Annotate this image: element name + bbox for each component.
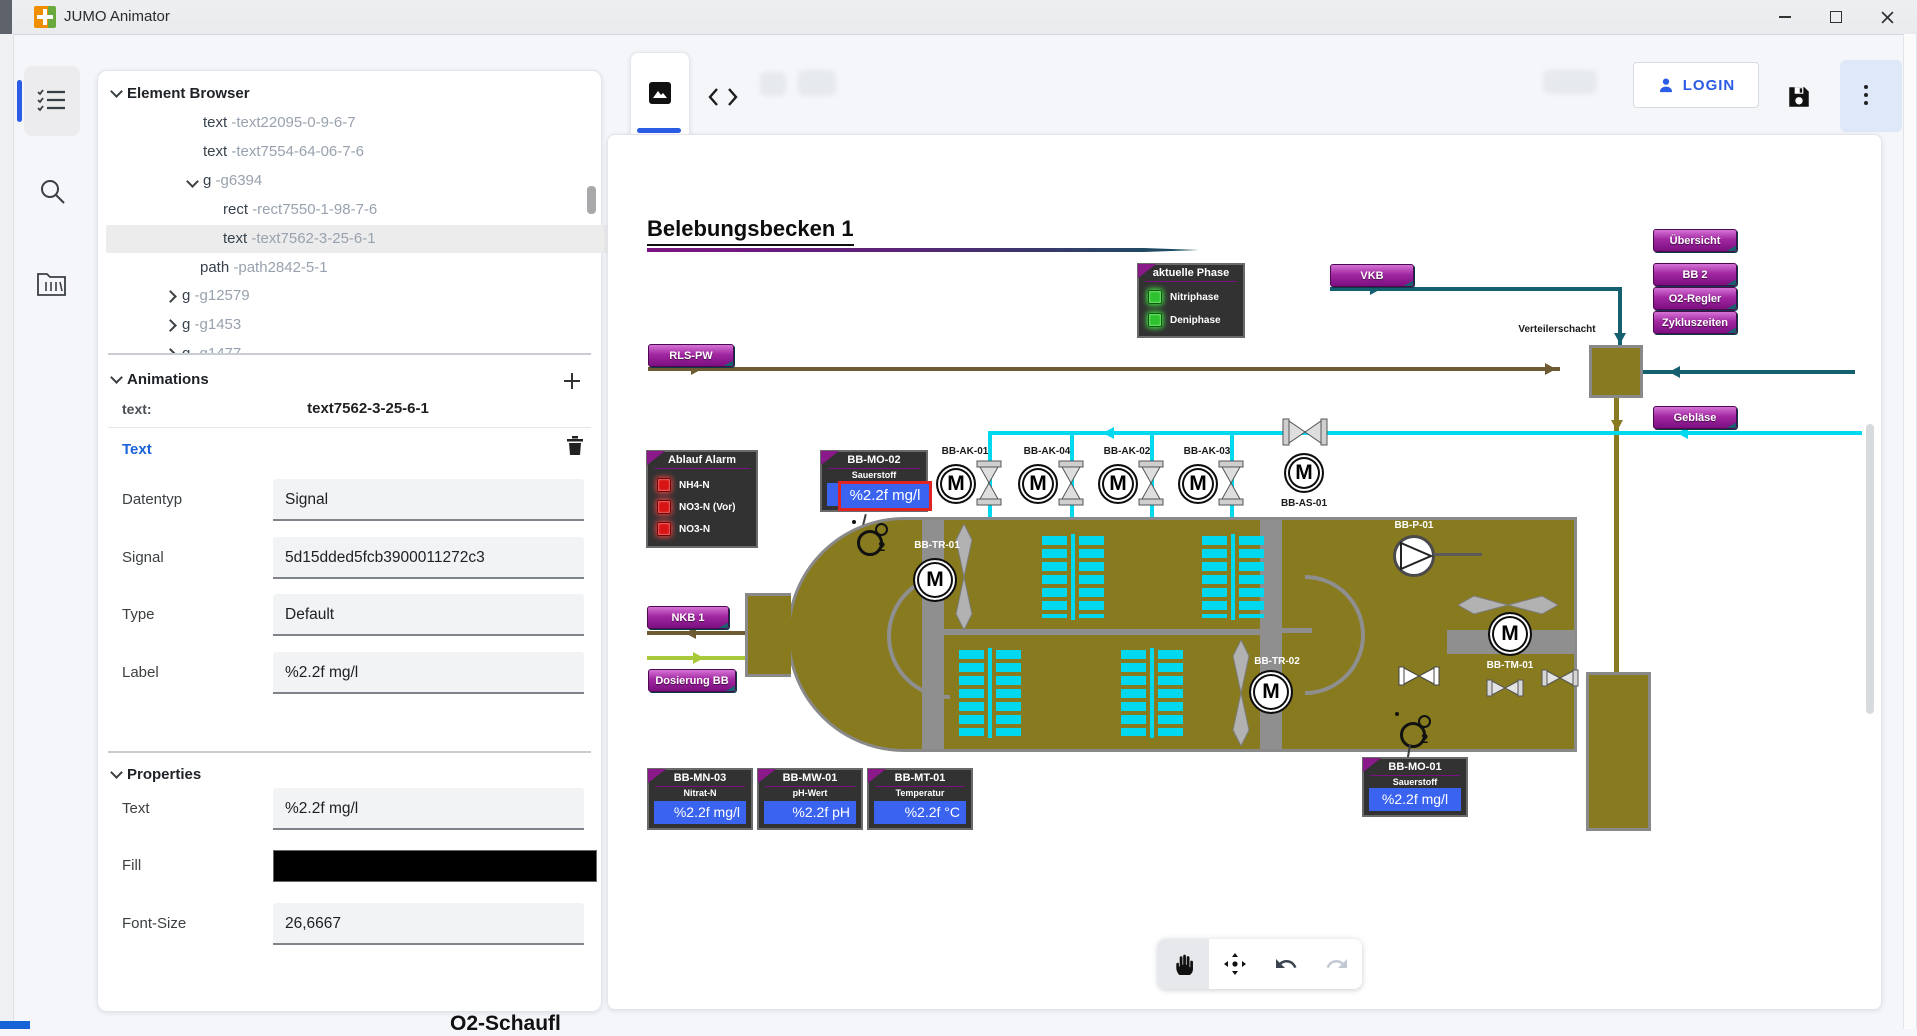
corner-accent <box>1138 264 1156 278</box>
undo-button[interactable] <box>1260 939 1311 989</box>
corner-accent <box>648 769 666 783</box>
image-icon <box>648 81 672 105</box>
taskbar-corner <box>0 1021 30 1029</box>
corner-accent <box>1721 301 1737 310</box>
canvas-tool-bar <box>1158 939 1362 989</box>
sensor-bb-mn-03[interactable]: BB-MN-03 Nitrat-N %2.2f mg/l <box>647 768 753 830</box>
motor-bb-ak-04[interactable]: M <box>1018 464 1058 504</box>
nav-button-nkb1[interactable]: NKB 1 <box>647 606 729 629</box>
nav-button-vkb[interactable]: VKB <box>1330 264 1414 287</box>
flow-arrow <box>1611 420 1623 431</box>
row-divider <box>108 427 591 428</box>
corner-accent <box>821 451 839 465</box>
heading-accent-line <box>647 248 1199 252</box>
diagram-title[interactable]: Belebungsbecken 1 <box>647 216 854 246</box>
animation-group-link[interactable]: Text <box>122 441 152 458</box>
pump-discharge-line <box>1434 553 1482 556</box>
nav-button-uebersicht[interactable]: Übersicht <box>1653 229 1737 252</box>
active-tab-indicator <box>637 128 681 133</box>
green-led <box>1148 313 1162 327</box>
field-label: Datentyp <box>122 491 182 508</box>
chevron-down-icon[interactable] <box>186 175 199 188</box>
nav-button-geblaese[interactable]: Gebläse <box>1653 406 1737 429</box>
add-animation-button[interactable] <box>562 371 582 396</box>
close-button[interactable] <box>1867 0 1907 34</box>
redacted-toolbar-item <box>760 72 786 96</box>
redo-button[interactable] <box>1311 939 1362 989</box>
element-list-icon <box>37 88 67 114</box>
motor-bb-as-01[interactable]: M <box>1284 453 1324 493</box>
flow-arrow <box>1545 363 1556 375</box>
diffuser-grid[interactable] <box>959 648 1021 738</box>
diffuser-grid[interactable] <box>1121 648 1183 738</box>
tab-visual-editor[interactable] <box>630 52 690 136</box>
login-label: LOGIN <box>1683 77 1736 94</box>
tr2-label: BB-TR-02 <box>1237 656 1317 667</box>
nav-button-zykluszeiten[interactable]: Zykluszeiten <box>1653 311 1737 334</box>
tm-label: BB-TM-01 <box>1472 660 1548 671</box>
pipe-olive-drop <box>1614 398 1619 674</box>
o2-dot <box>1395 712 1399 716</box>
phase-status-box[interactable]: aktuelle Phase Nitriphase Deniphase <box>1137 263 1245 338</box>
red-led <box>657 522 671 536</box>
aerator-label: BB-AK-03 <box>1167 446 1247 457</box>
maximize-icon <box>1830 11 1842 23</box>
pan-tool-button[interactable] <box>1158 939 1209 989</box>
save-button[interactable] <box>1786 84 1812 115</box>
corner-accent <box>868 769 886 783</box>
fill-color-swatch[interactable] <box>273 850 597 882</box>
motor-bb-tr-01[interactable]: M <box>913 558 957 602</box>
code-icon <box>708 86 738 108</box>
tab-code-editor[interactable] <box>708 86 738 113</box>
field-label: Text <box>122 800 150 817</box>
canvas-scrollbar-thumb[interactable] <box>1866 424 1874 714</box>
green-led <box>1148 290 1162 304</box>
sensor-bb-mw-01[interactable]: BB-MW-01 pH-Wert %2.2f pH <box>757 768 863 830</box>
save-icon <box>1786 84 1812 110</box>
window-edge-dark <box>0 0 12 34</box>
chevron-right-icon[interactable] <box>164 319 177 332</box>
motor-bb-tm-01[interactable]: M <box>1488 612 1532 656</box>
corner-accent <box>1363 758 1381 772</box>
corner-accent <box>758 769 776 783</box>
tree-row[interactable]: g -g14772 <box>106 340 682 353</box>
window-titlebar[interactable]: JUMO Animator <box>0 0 1917 35</box>
nav-button-bb2[interactable]: BB 2 <box>1653 263 1737 286</box>
aerator-label: BB-AK-01 <box>925 446 1005 457</box>
rail-active-indicator <box>17 80 22 122</box>
redacted-toolbar-item <box>798 70 836 96</box>
flow-arrow <box>1669 366 1680 378</box>
pipe-air-header-cyan <box>990 431 1862 435</box>
sidebar-item-elements[interactable] <box>37 88 67 119</box>
user-icon <box>1657 76 1675 94</box>
jumo-logo-icon <box>34 6 56 28</box>
valve-icon[interactable] <box>1058 460 1084 506</box>
window-scrollbar[interactable] <box>1903 34 1917 1029</box>
animations-header[interactable]: Animations <box>112 371 209 389</box>
sensor-bb-mo-01[interactable]: BB-MO-01 Sauerstoff %2.2f mg/l <box>1362 757 1468 817</box>
pump-icon[interactable] <box>1392 534 1436 578</box>
clipped-heading-fragment: O2-Schaufl <box>450 1012 561 1036</box>
valve-icon[interactable] <box>1486 678 1524 698</box>
side-tank[interactable] <box>1586 672 1651 831</box>
undo-icon <box>1274 952 1298 976</box>
window-edge-strip <box>0 34 14 1029</box>
valve-icon-white[interactable] <box>1398 665 1440 687</box>
verteilerschacht-label: Verteilerschacht <box>1497 324 1617 335</box>
motor-bb-ak-03[interactable]: M <box>1178 464 1218 504</box>
properties-header[interactable]: Properties <box>112 766 201 784</box>
sensor-value[interactable]: %2.2f mg/l <box>654 801 746 824</box>
tr1-label: BB-TR-01 <box>897 540 977 551</box>
corner-accent <box>713 620 729 629</box>
delete-animation-button[interactable] <box>566 435 584 461</box>
aerator-label: BB-AK-02 <box>1087 446 1167 457</box>
move-icon <box>1223 952 1247 976</box>
motor-bb-tr-02[interactable]: M <box>1249 670 1293 714</box>
section-divider <box>108 751 591 753</box>
selected-text-element[interactable]: %2.2f mg/l <box>838 481 932 511</box>
sidebar-item-library[interactable] <box>37 270 66 301</box>
basin-mid-divider <box>940 629 1262 635</box>
flow-arrow <box>1103 427 1114 439</box>
tree-row[interactable]: g -g14531 <box>106 311 682 339</box>
nav-button-dosierung-bb[interactable]: Dosierung BB <box>648 669 736 692</box>
chevron-down-icon <box>110 85 123 98</box>
tree-scrollbar-thumb[interactable] <box>587 186 596 214</box>
red-led <box>657 500 671 514</box>
window-title: JUMO Animator <box>64 8 170 25</box>
corner-accent <box>647 451 665 465</box>
o2-dot <box>852 520 856 524</box>
search-icon <box>38 177 66 205</box>
field-label: Label <box>122 664 159 681</box>
nav-button-rls-pw[interactable]: RLS-PW <box>648 344 734 367</box>
redacted-toolbar-item <box>1543 70 1597 94</box>
red-led <box>657 478 671 492</box>
as-label: BB-AS-01 <box>1264 498 1344 509</box>
redo-icon <box>1325 952 1349 976</box>
sensor-value[interactable]: %2.2f mg/l <box>1369 788 1461 811</box>
sidebar-item-search[interactable] <box>38 177 66 210</box>
signal-input[interactable]: 5d15dded5fcb3900011272c3 <box>273 537 584 579</box>
library-folder-icon <box>37 270 66 296</box>
menu-hover-bg <box>1840 60 1902 132</box>
datentyp-input[interactable]: Signal <box>273 479 584 521</box>
scada-canvas[interactable]: Belebungsbecken 1 Verteilerschacht RLS-P… <box>607 134 1880 1008</box>
inspector-panel: Element Browser text -text22095-0-9-6-7 … <box>97 70 602 1012</box>
trash-icon <box>566 435 584 456</box>
field-label: Font-Size <box>122 915 186 932</box>
pipe-inlet-brown <box>648 367 1560 371</box>
corner-accent <box>718 358 734 367</box>
valve-icon[interactable] <box>1282 418 1328 446</box>
o2-bubble <box>1418 715 1431 728</box>
corner-accent <box>1721 420 1737 429</box>
flow-arrow <box>693 652 704 664</box>
corner-accent <box>1398 278 1414 287</box>
minimize-icon <box>1779 16 1791 18</box>
animation-target-label: text: <box>122 401 152 417</box>
chevron-down-icon <box>110 766 123 779</box>
valve-icon[interactable] <box>1138 460 1164 506</box>
animation-target-value: text7562-3-25-6-1 <box>248 400 488 417</box>
p1-label: BB-P-01 <box>1382 520 1446 531</box>
kebab-icon <box>1864 85 1868 89</box>
chevron-down-icon <box>110 371 123 384</box>
login-button[interactable]: LOGIN <box>1633 62 1759 108</box>
field-label: Type <box>122 606 155 623</box>
nav-button-o2-regler[interactable]: O2-Regler <box>1653 287 1737 310</box>
move-tool-button[interactable] <box>1209 939 1260 989</box>
plus-icon <box>562 371 582 391</box>
sensor-value[interactable]: %2.2f °C <box>874 801 966 824</box>
chevron-right-icon[interactable] <box>164 290 177 303</box>
section-divider <box>108 353 591 355</box>
sensor-bb-mt-01[interactable]: BB-MT-01 Temperatur %2.2f °C <box>867 768 973 830</box>
diffuser-grid[interactable] <box>1202 534 1264 620</box>
o2-bubble <box>875 523 888 536</box>
hand-icon <box>1173 951 1195 977</box>
minimize-button[interactable] <box>1765 0 1805 34</box>
corner-accent <box>1721 277 1737 286</box>
verteilerschacht-box[interactable] <box>1589 345 1643 398</box>
motor-bb-ak-01[interactable]: M <box>936 464 976 504</box>
maximize-button[interactable] <box>1816 0 1856 34</box>
basin-inlet-stub <box>745 593 791 677</box>
type-input[interactable]: Default <box>273 594 584 636</box>
element-browser-header[interactable]: Element Browser <box>112 85 250 103</box>
sensor-value[interactable]: %2.2f pH <box>764 801 856 824</box>
more-menu-button[interactable] <box>1864 85 1868 105</box>
field-label: Fill <box>122 857 141 874</box>
tree-row[interactable]: text -text22095-0-9-6-7 <box>106 109 703 137</box>
corner-accent <box>1721 243 1737 252</box>
jumo-animator-window: { "window": {"title": "JUMO Animator"}, … <box>0 0 1917 1029</box>
diffuser-grid[interactable] <box>1042 534 1104 620</box>
close-icon <box>1881 11 1894 24</box>
valve-icon[interactable] <box>976 460 1002 506</box>
valve-icon[interactable] <box>1218 460 1244 506</box>
tree-row[interactable]: g -g12579 <box>106 282 682 310</box>
aerator-label: BB-AK-04 <box>1007 446 1087 457</box>
motor-bb-ak-02[interactable]: M <box>1098 464 1138 504</box>
alarm-box[interactable]: Ablauf Alarm NH4-N NO3-N (Vor) NO3-N <box>646 450 758 548</box>
text-property-input[interactable]: %2.2f mg/l <box>273 788 584 830</box>
font-size-input[interactable]: 26,6667 <box>273 903 584 945</box>
field-label: Signal <box>122 549 164 566</box>
label-input[interactable]: %2.2f mg/l <box>273 652 584 694</box>
valve-icon[interactable] <box>1541 668 1579 688</box>
